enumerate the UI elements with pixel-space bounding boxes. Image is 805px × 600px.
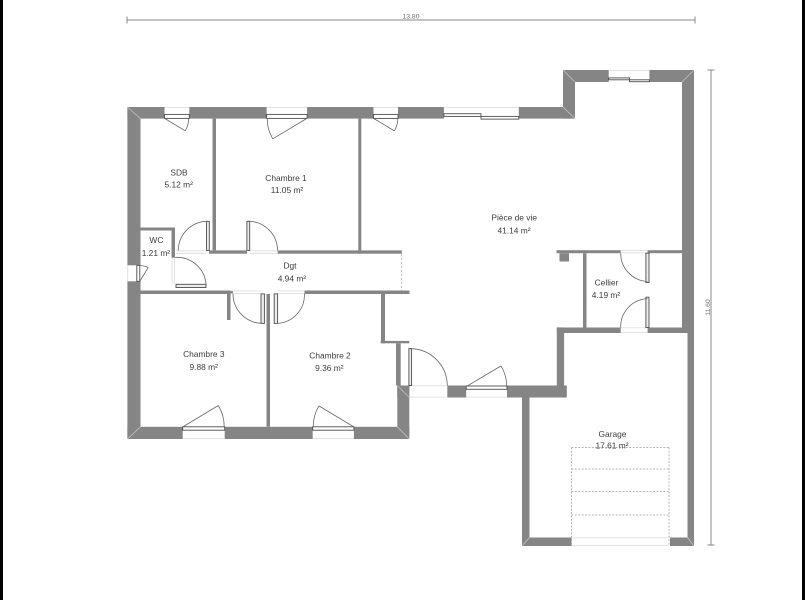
svg-text:17.61 m²: 17.61 m² [595, 441, 628, 451]
svg-text:41.14 m²: 41.14 m² [497, 226, 530, 236]
svg-text:4.19 m²: 4.19 m² [592, 290, 621, 300]
svg-text:9.36 m²: 9.36 m² [315, 363, 344, 373]
svg-text:SDB: SDB [170, 167, 188, 177]
svg-text:9.88 m²: 9.88 m² [189, 362, 218, 372]
svg-text:Pièce de vie: Pièce de vie [491, 213, 537, 223]
svg-text:Chambre 2: Chambre 2 [309, 351, 351, 361]
svg-text:5.12 m²: 5.12 m² [164, 180, 193, 190]
svg-text:Dgt: Dgt [283, 261, 297, 271]
svg-text:Chambre 1: Chambre 1 [265, 173, 307, 183]
svg-text:Cellier: Cellier [595, 277, 619, 287]
svg-text:WC: WC [149, 235, 163, 245]
svg-text:13.80: 13.80 [402, 14, 419, 21]
svg-text:Chambre 3: Chambre 3 [183, 349, 225, 359]
svg-text:11.60: 11.60 [705, 299, 712, 316]
svg-text:Garage: Garage [599, 429, 627, 439]
svg-text:1.21 m²: 1.21 m² [142, 248, 171, 258]
svg-text:4.94 m²: 4.94 m² [278, 274, 307, 284]
svg-text:11.05 m²: 11.05 m² [271, 185, 304, 195]
